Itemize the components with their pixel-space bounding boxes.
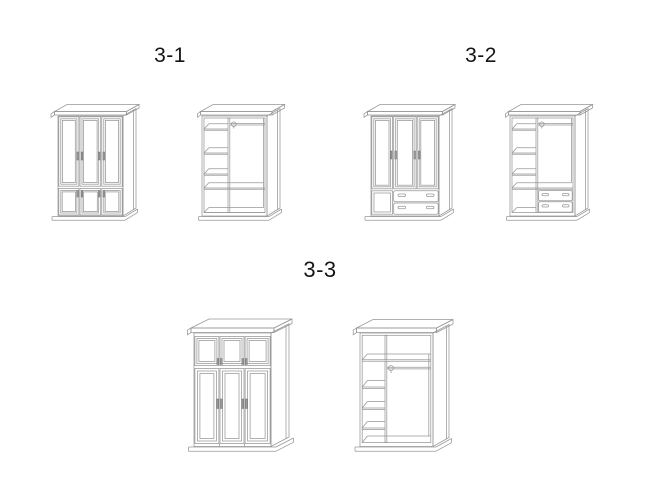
drawer-1 [539, 191, 573, 201]
lower-doors [59, 189, 122, 216]
cabinet-floor [204, 208, 265, 213]
top-slab [198, 105, 285, 118]
base-plinth [355, 439, 452, 452]
wardrobe-3-3-front-view [186, 313, 298, 461]
wardrobe-3-1-interior-view [196, 99, 288, 231]
side-panel [123, 109, 136, 217]
full-width-shelf [204, 183, 265, 190]
vertical-divider [536, 118, 538, 213]
section-label-3-2: 3-2 [451, 44, 511, 68]
cabinet-body [194, 333, 271, 447]
vertical-divider [228, 118, 230, 213]
carcass [202, 116, 267, 216]
tall-doors [372, 117, 438, 189]
drawer-1 [394, 191, 439, 202]
top-slab [506, 105, 593, 118]
cabinet-body [371, 116, 439, 216]
top-shelf [362, 354, 431, 361]
wardrobe-3-2-front-view [361, 99, 459, 231]
section-label-3-1: 3-1 [140, 44, 200, 68]
cabinet-floor [362, 436, 431, 443]
door-handles [390, 151, 420, 159]
cabinet-body [58, 116, 123, 216]
drawer-2 [394, 203, 439, 214]
top-slab [51, 105, 139, 118]
top-slab [353, 320, 453, 335]
base-rail [219, 444, 244, 446]
side-panel [433, 325, 449, 447]
wardrobe-3-1-front-view [48, 99, 143, 231]
shelf-column [362, 381, 385, 430]
vertical-divider [385, 361, 387, 442]
shelf-column [512, 124, 536, 176]
drawer-2 [539, 202, 573, 212]
cabinet-floor [512, 208, 536, 213]
tall-doors [59, 117, 122, 186]
side-panel [575, 109, 588, 217]
side-panel [439, 109, 452, 217]
top-compartment-divider [385, 335, 387, 360]
base-plinth [365, 209, 454, 220]
top-compartment-doors [195, 337, 270, 366]
side-panel [267, 109, 280, 217]
wardrobe-3-3-interior-view [352, 313, 454, 461]
lower-left-door [372, 191, 393, 214]
hanging-rod [230, 122, 265, 129]
diagram-page: 3-1 3-2 3-3 [0, 0, 652, 500]
door-handles [217, 399, 248, 409]
section-label-3-3: 3-3 [290, 257, 350, 281]
full-width-shelf [512, 183, 573, 190]
hanging-rod [538, 122, 573, 129]
wardrobe-3-2-interior-view [504, 99, 596, 231]
shelf-column [204, 124, 228, 176]
tall-doors [195, 369, 270, 444]
hanging-rod [387, 366, 431, 373]
side-panel [271, 324, 289, 447]
base-plinth [189, 438, 294, 451]
top-slab [188, 319, 293, 335]
top-slab [364, 105, 455, 118]
